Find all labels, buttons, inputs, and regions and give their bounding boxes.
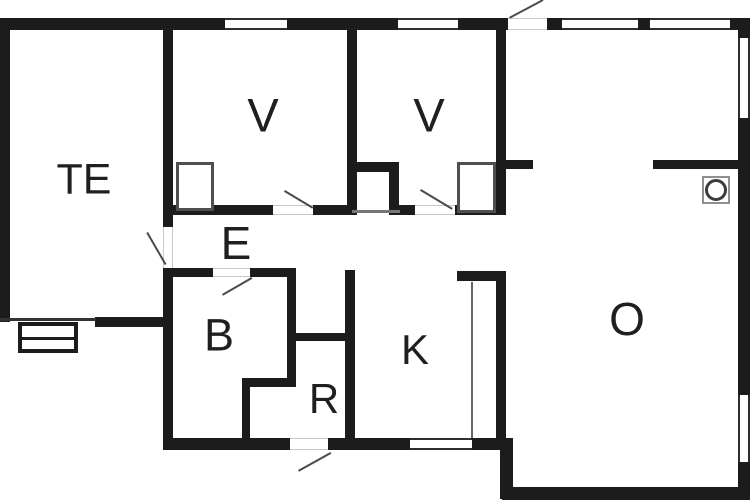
wall-te-right-upper <box>163 18 173 227</box>
door-bath-swing <box>222 277 252 296</box>
window-kitchen <box>410 438 472 450</box>
wall-entry-divider-left <box>506 160 533 169</box>
window-v1 <box>225 18 287 30</box>
wall-bedroom-divider <box>347 18 357 215</box>
wall-closet-niche-right <box>389 162 399 215</box>
wall-top-seg1 <box>0 18 225 30</box>
wall-bath-step-v <box>242 378 250 450</box>
wall-bath-top-seg1 <box>163 268 213 277</box>
wall-bottom-left-seg2 <box>328 438 410 450</box>
window-v2 <box>398 18 458 30</box>
wall-v2-right <box>496 18 506 215</box>
room-label-bathroom: B <box>204 313 234 358</box>
wall-entry-divider-right <box>653 160 738 169</box>
wall-bath-step-h <box>242 378 296 387</box>
window-living-right-1 <box>738 38 750 118</box>
kitchen-counter-line <box>471 282 473 438</box>
wood-stove-icon <box>702 176 730 204</box>
room-label-utility: R <box>309 378 339 420</box>
room-label-bedroom-2: V <box>413 92 444 139</box>
wall-bath-right <box>287 268 296 387</box>
wall-right-seg1 <box>738 18 750 38</box>
wall-right-seg2 <box>738 118 750 395</box>
floor-plan: TE V V E B R K O <box>0 0 750 500</box>
room-label-terrace: TE <box>57 159 112 202</box>
wood-stove-ring <box>705 179 727 201</box>
terrace-edge-line <box>0 318 96 321</box>
wall-top-seg5 <box>638 18 650 30</box>
room-label-living: O <box>609 296 645 342</box>
window-living-top-1 <box>562 18 638 30</box>
room-label-kitchen: K <box>401 329 429 371</box>
door-bath-gap <box>213 268 250 277</box>
wall-terrace-south <box>95 317 173 327</box>
wall-corridor-top-seg3 <box>399 205 415 215</box>
wall-bottom-left-seg1 <box>163 438 290 450</box>
wall-bottom-right <box>502 487 750 500</box>
wall-kitchen-right <box>496 281 506 438</box>
hall-closet-sill <box>352 210 400 213</box>
door-utility-gap <box>290 438 328 450</box>
window-living-top-2 <box>650 18 730 30</box>
room-label-bedroom-1: V <box>247 92 278 139</box>
door-utility-swing <box>298 452 331 472</box>
wall-kitchen-left <box>345 270 355 450</box>
door-entry-gap <box>508 18 547 30</box>
wall-top-seg4 <box>547 18 562 30</box>
terrace-step-edge <box>22 337 74 340</box>
wall-te-right-lower <box>163 268 173 450</box>
wardrobe-v2 <box>457 162 496 213</box>
wall-kitchen-top-stub <box>457 271 506 281</box>
wall-top-seg2 <box>287 18 398 30</box>
room-label-hall: E <box>221 220 252 266</box>
door-entry-swing <box>509 0 543 19</box>
window-living-right-2 <box>738 395 750 462</box>
door-v1-gap <box>273 205 313 215</box>
terrace-steps <box>18 322 78 353</box>
wardrobe-v1 <box>176 162 214 211</box>
wall-left <box>0 18 10 322</box>
wall-corridor-top-seg2 <box>313 205 352 215</box>
